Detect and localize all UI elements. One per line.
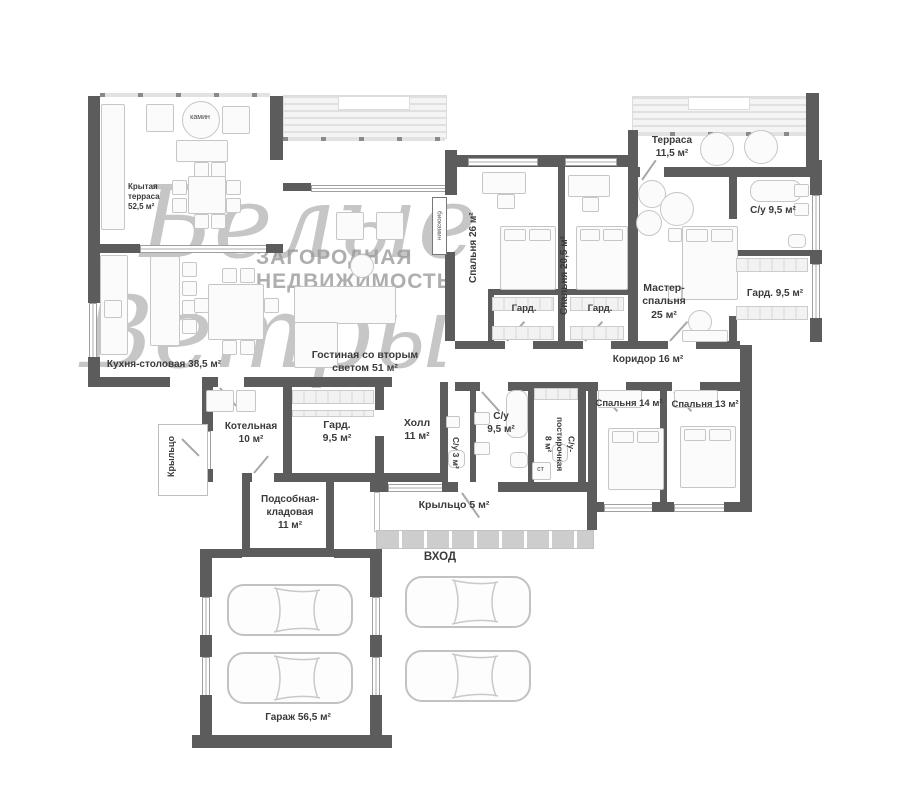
- door-swing: [481, 391, 500, 412]
- stove: [104, 300, 122, 318]
- nightstand: [668, 228, 682, 242]
- wall: [242, 548, 334, 557]
- wall: [810, 250, 822, 264]
- room-label-storage: Подсобная- кладовая 11 м²: [252, 494, 328, 532]
- room-label-terrace115: Терраса 11,5 м²: [642, 135, 702, 161]
- wall: [88, 96, 100, 244]
- wall: [88, 377, 168, 387]
- closet-shelf: [492, 326, 554, 340]
- wall: [283, 183, 311, 191]
- wall: [729, 177, 737, 219]
- wall: [370, 473, 388, 492]
- door-swing: [253, 456, 269, 474]
- door-opening: [505, 339, 533, 351]
- room-label-wc3: С/у 3 м²: [450, 428, 461, 478]
- bar-stool: [182, 281, 197, 296]
- room-label-covered-terrace: Крытая терраса 52,5 м²: [128, 182, 176, 213]
- pillow: [612, 431, 634, 443]
- room-label-hall-ward: Гард. 9,5 м²: [312, 419, 362, 446]
- pillow: [580, 229, 600, 241]
- room-label-ward205: Гард.: [578, 303, 622, 315]
- wall: [200, 557, 212, 597]
- sink: [446, 416, 460, 428]
- wall: [283, 387, 292, 473]
- window: [202, 597, 210, 637]
- pillow: [684, 429, 706, 441]
- window: [140, 245, 268, 253]
- porch-edge: [374, 492, 380, 532]
- chair: [226, 198, 241, 213]
- wall: [192, 735, 392, 748]
- closet-shelf: [570, 326, 624, 340]
- door-opening: [252, 473, 274, 482]
- chair: [582, 197, 599, 212]
- car: [404, 648, 532, 704]
- chair: [222, 340, 237, 355]
- window: [812, 264, 820, 320]
- window: [388, 484, 444, 492]
- room-label-laundry: С/у- постирочная 8 м²: [542, 406, 576, 482]
- shelf: [534, 388, 578, 400]
- chair: [240, 340, 255, 355]
- room-label-kitchen: Кухня-столовая 38,5 м²: [104, 359, 224, 372]
- bar-stool: [182, 319, 197, 334]
- round-chair: [636, 210, 662, 236]
- armchair: [376, 212, 404, 240]
- car: [226, 582, 354, 638]
- room-label-corridor: Коридор 16 м²: [608, 354, 688, 367]
- double-bed: [608, 428, 664, 490]
- wall: [242, 473, 250, 557]
- terrace-colonnade: [100, 93, 270, 97]
- pillow: [711, 229, 733, 242]
- window: [311, 185, 447, 192]
- room-label-bedroom13: Спальня 13 м²: [670, 399, 740, 411]
- room-label-porch-left: Крыльцо: [166, 428, 178, 486]
- toilet: [788, 234, 806, 248]
- wall: [652, 502, 674, 512]
- sink: [474, 442, 490, 455]
- entrance-steps: [376, 530, 594, 549]
- kitchen-island: [150, 256, 180, 346]
- armchair: [222, 106, 250, 134]
- desk: [482, 172, 526, 194]
- armchair: [146, 104, 174, 132]
- window: [604, 504, 654, 512]
- wall: [370, 635, 382, 657]
- chair: [211, 214, 226, 229]
- wall: [724, 502, 752, 512]
- pillow: [709, 429, 731, 441]
- coffee-table: [350, 254, 374, 278]
- room-label-living: Гостиная со вторым светом 51 м²: [300, 349, 430, 376]
- room-label-biofireplace: биокамин: [434, 201, 442, 251]
- wall: [740, 345, 752, 512]
- room-label-porch5: Крыльцо 5 м²: [394, 499, 514, 512]
- fireplace-label: камин: [182, 114, 218, 123]
- room-label-bedroom14: Спальня 14 м²: [594, 398, 664, 410]
- window: [565, 158, 617, 166]
- sink: [794, 184, 809, 197]
- closet-shelf: [292, 410, 374, 417]
- wall: [445, 252, 455, 341]
- room-label-garage: Гараж 56,5 м²: [256, 712, 340, 725]
- pillow: [637, 431, 659, 443]
- door-opening: [583, 339, 611, 351]
- desk: [568, 175, 610, 197]
- cabinet: [101, 104, 125, 230]
- wall: [810, 160, 822, 195]
- room-label-master-bath: С/у 9,5 м²: [742, 205, 804, 218]
- room-label-master: Мастер- спальня 25 м²: [636, 282, 692, 322]
- wall: [729, 250, 810, 256]
- window: [89, 303, 97, 359]
- wall: [160, 377, 170, 387]
- room-label-bedroom26: Спальня 26 м²: [468, 212, 481, 284]
- wall: [442, 482, 458, 492]
- chair: [240, 268, 255, 283]
- wall: [88, 253, 100, 303]
- room-label-master-ward: Гард. 9,5 м²: [742, 288, 808, 301]
- dining-table: [208, 284, 264, 340]
- wall: [587, 482, 597, 530]
- chair: [497, 194, 515, 209]
- deck-inset: [338, 96, 410, 110]
- chair: [194, 298, 209, 313]
- chair: [264, 298, 279, 313]
- round-chair: [744, 130, 778, 164]
- boiler-tank: [236, 390, 256, 412]
- double-bed: [680, 426, 736, 488]
- double-bed: [500, 226, 556, 290]
- dining-table: [188, 176, 226, 214]
- wall: [470, 382, 476, 482]
- room-label-hall: Холл 11 м²: [394, 417, 440, 444]
- room-label-boiler: Котельная 10 м²: [218, 421, 284, 447]
- closet-shelf: [292, 390, 374, 404]
- wall: [810, 318, 822, 342]
- dresser: [682, 330, 728, 342]
- chair: [222, 268, 237, 283]
- pillow: [529, 229, 551, 241]
- chair: [211, 162, 226, 177]
- bar-stool: [182, 262, 197, 277]
- window: [674, 504, 726, 512]
- wall: [200, 635, 212, 657]
- room-label-entrance: ВХОД: [412, 550, 468, 565]
- window: [372, 597, 380, 637]
- car: [226, 650, 354, 706]
- car: [404, 574, 532, 630]
- double-bed: [576, 226, 628, 290]
- wall: [440, 382, 448, 482]
- window: [202, 657, 210, 697]
- room-label-wc95: С/у 9,5 м²: [478, 411, 524, 437]
- wall: [375, 387, 384, 410]
- window: [468, 158, 538, 166]
- wall: [370, 549, 382, 597]
- chair: [194, 162, 209, 177]
- closet-shelf: [736, 306, 808, 320]
- window: [372, 657, 380, 697]
- deck-inset-2: [688, 97, 750, 110]
- window: [812, 195, 820, 252]
- toilet: [510, 452, 528, 468]
- floor-plan: Белые Ветры ЗАГОРОДНАЯ НЕДВИЖИМОСТЬ биок…: [0, 0, 900, 800]
- door-opening: [480, 380, 508, 393]
- wall: [202, 377, 218, 387]
- wall: [578, 382, 586, 482]
- wall: [266, 244, 283, 253]
- closet-shelf: [736, 258, 808, 272]
- armchair: [336, 212, 364, 240]
- wall: [375, 436, 384, 473]
- chair: [226, 180, 241, 195]
- wall: [270, 96, 283, 160]
- sofa: [176, 140, 228, 162]
- boiler-unit: [206, 390, 234, 412]
- wall: [244, 377, 392, 387]
- round-chair: [700, 132, 734, 166]
- wall: [498, 482, 597, 492]
- room-label-ward26: Гард.: [496, 303, 552, 315]
- living-deck-colonnade: [283, 137, 445, 141]
- pillow: [504, 229, 526, 241]
- wall: [88, 244, 140, 253]
- round-chair: [660, 192, 694, 226]
- sofa: [294, 286, 396, 324]
- chair: [194, 214, 209, 229]
- pillow: [603, 229, 623, 241]
- pillow: [686, 229, 708, 242]
- room-label-bedroom205: Спальня 20,5 м²: [559, 234, 572, 318]
